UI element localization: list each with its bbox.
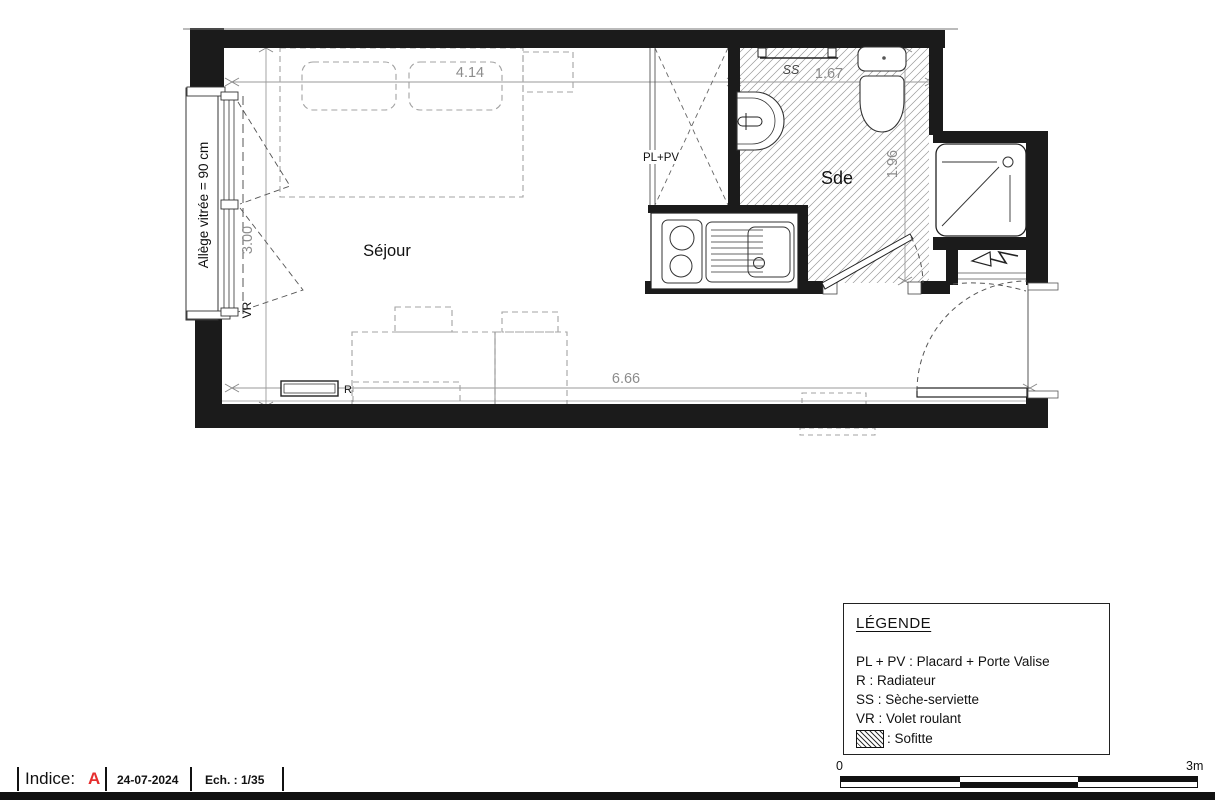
dim-sde-width: 1.67 [815,66,843,82]
footer-scale: Ech. : 1/35 [205,773,264,787]
legend-item-pl-pv: PL + PV : Placard + Porte Valise [856,652,1109,671]
hob [662,220,702,283]
scale-start-label: 0 [836,759,843,773]
legend-title: LÉGENDE [856,615,1109,632]
legend-item-vr: VR : Volet roulant [856,709,1109,728]
room-label-sejour: Séjour [363,242,411,260]
room-label-sde: Sde [821,168,853,188]
toilet [858,47,906,132]
scale-end-label: 3m [1186,759,1203,773]
legend-sofitte-label: : Sofitte [887,729,933,748]
label-ss: SS [783,63,800,77]
mullion [221,200,238,209]
label-pl-pv: PL+PV [643,152,679,164]
closet-pl-pv [650,48,728,205]
footer-date: 24-07-2024 [117,773,178,787]
dining-table [352,307,567,406]
floor-plan-sheet: Séjour Sde PL+PV SS R VR Allège vitrée =… [0,0,1215,800]
label-vr: VR [240,301,254,318]
sofitte-hatch-swatch [856,730,884,748]
door-jamb [908,282,921,294]
scale-bar [840,776,1198,788]
dim-sde-height: 1.96 [885,150,901,178]
indice-label: Indice: [25,769,75,789]
footer-divider [17,767,19,791]
dim-total-width: 6.66 [612,371,640,387]
nightstand [523,52,573,92]
dim-sejour-height: 3.00 [240,226,256,254]
entrance-door [917,281,1027,397]
label-r: R [344,384,352,396]
casement-swing [238,102,290,204]
sink-unit [706,222,794,282]
door-jamb [1028,283,1058,290]
below-wall-dashed [800,428,875,435]
bottom-border-strip [0,792,1215,800]
indice-value: A [88,769,100,789]
dim-sejour-width: 4.14 [456,65,484,81]
bowl [860,76,904,132]
door-jamb [1028,391,1058,398]
mullion [221,308,238,316]
footer-divider [282,767,284,791]
pillow [302,62,396,110]
mullion [221,92,238,100]
legend-box: LÉGENDE PL + PV : Placard + Porte Valise… [843,603,1110,755]
label-allege-vitree: Allège vitrée = 90 cm [196,142,211,268]
radiator [281,381,338,396]
chair [502,312,558,332]
casement-swing [238,208,303,312]
faucet [738,117,762,126]
bed [280,48,573,197]
shower [936,144,1026,236]
footer-divider [105,767,107,791]
legend-item-r: R : Radiateur [856,671,1109,690]
footer-divider [190,767,192,791]
chair [395,307,452,332]
electrical-arrow [972,252,1018,266]
legend-item-sofitte: : Sofitte [856,729,1109,748]
cistern [858,47,906,71]
legend-item-ss: SS : Sèche-serviette [856,690,1109,709]
kitchenette [651,213,798,289]
